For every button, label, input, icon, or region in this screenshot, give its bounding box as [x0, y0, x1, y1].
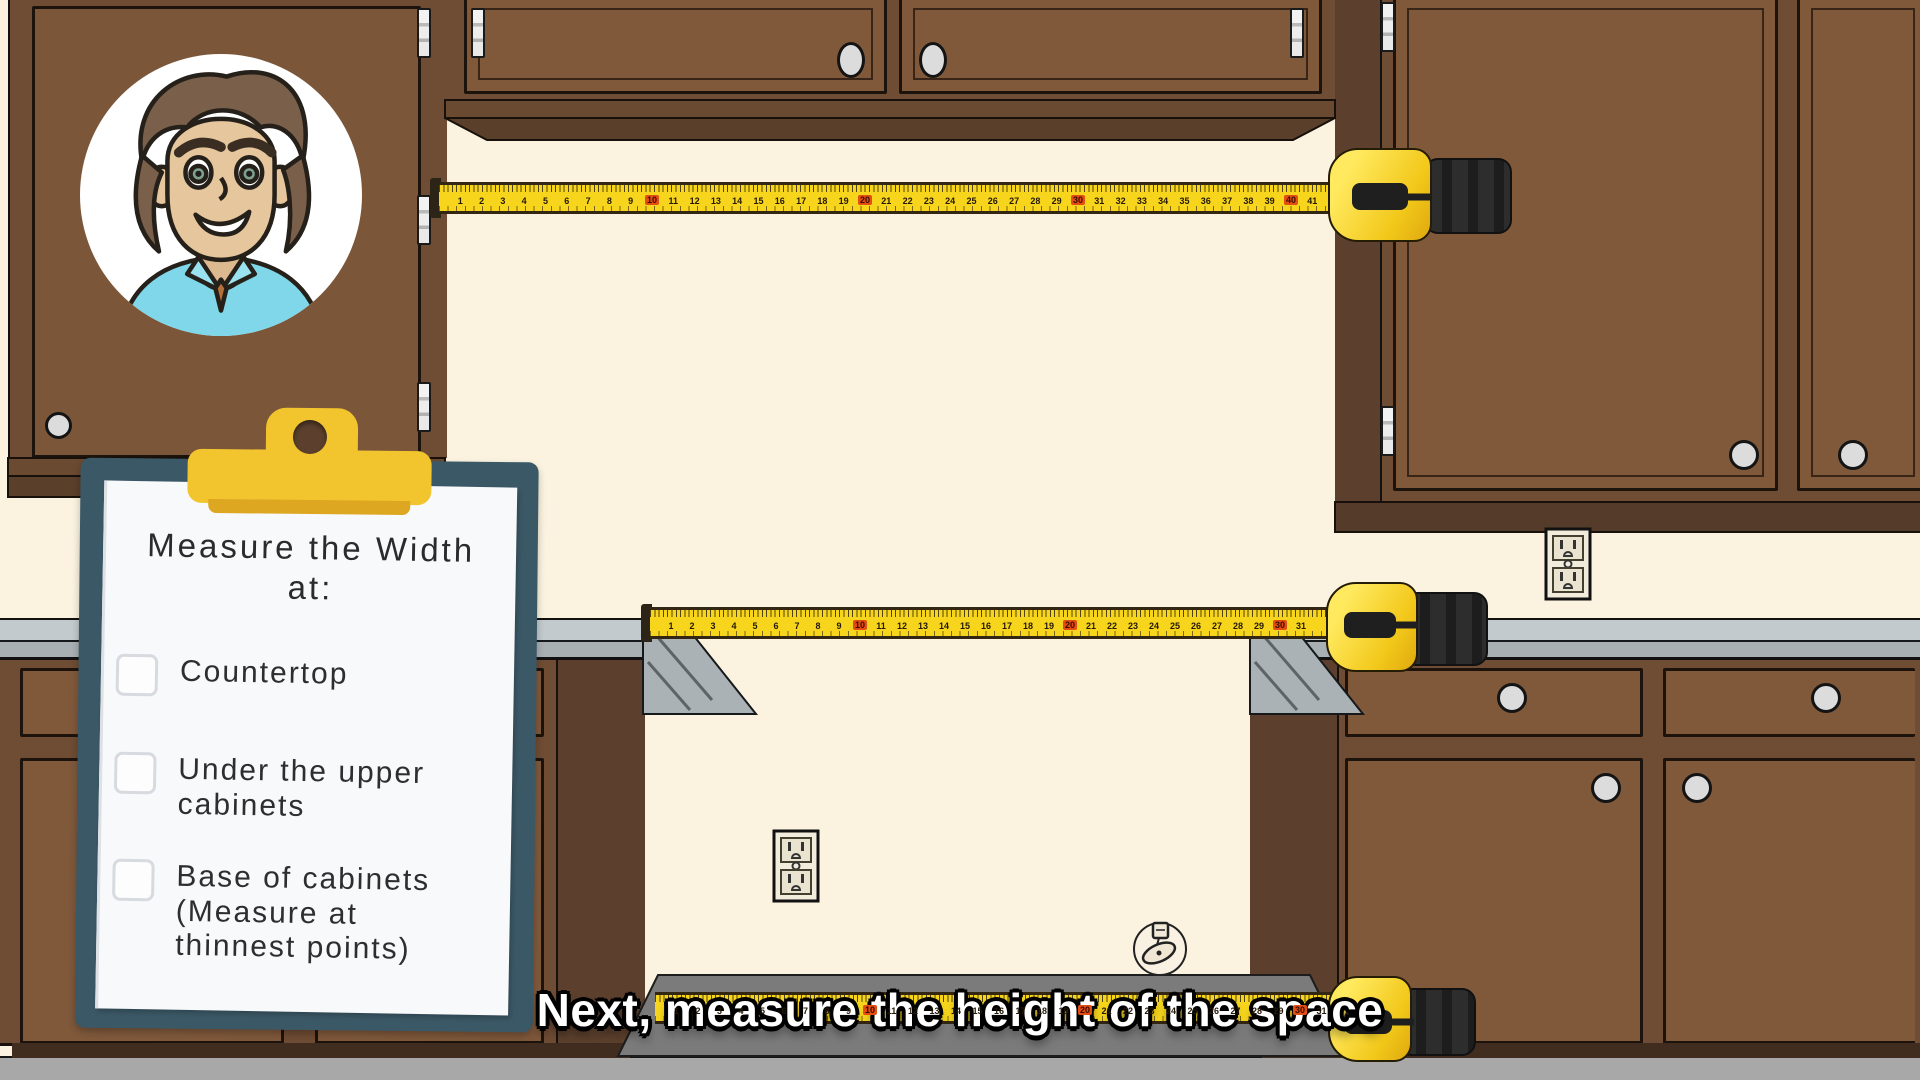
tape-number: 27 [1212, 621, 1222, 631]
presenter-avatar [80, 54, 362, 336]
tape-number: 30 [1293, 1005, 1307, 1015]
checklist-item: Base of cabinets (Measure at thinnest po… [111, 859, 482, 969]
upper-right-right-door [1797, 0, 1920, 491]
tape-number: 17 [1002, 621, 1012, 631]
tape-number: 13 [711, 196, 721, 206]
clipboard-clip-icon [208, 499, 410, 515]
floor [0, 1056, 1920, 1080]
tape-number: 29 [1254, 621, 1264, 631]
lower-right-drawer [1345, 668, 1643, 737]
tape-number: 15 [960, 621, 970, 631]
checklist-title-line2: at: [105, 564, 516, 611]
tape-number: 27 [1009, 196, 1019, 206]
tape-number: 16 [994, 1006, 1004, 1016]
tape-number: 6 [781, 1006, 786, 1016]
tape-number: 20 [1078, 1005, 1092, 1015]
tape-number: 31 [1094, 196, 1104, 206]
tape-number: 29 [1273, 1006, 1283, 1016]
tape-number: 28 [1233, 621, 1243, 631]
tape-number: 18 [817, 196, 827, 206]
tape-number: 3 [710, 621, 715, 631]
toe-kick [12, 1043, 630, 1058]
tape-number: 17 [1015, 1006, 1025, 1016]
cabinet-knob [837, 42, 865, 78]
tape-number: 39 [1265, 196, 1275, 206]
tape-number: 31 [1296, 621, 1306, 631]
clipboard: Measure the Width at: Countertop Under t… [75, 406, 539, 1033]
cabinet-hinge-icon [1290, 8, 1304, 58]
checklist-item: Countertop [116, 654, 349, 700]
tape-number: 15 [753, 196, 763, 206]
tape-number: 10 [853, 620, 867, 630]
tape-number: 1 [668, 621, 673, 631]
checkbox-icon[interactable] [114, 752, 157, 795]
tape-number: 13 [918, 621, 928, 631]
tape-number: 30 [1071, 195, 1085, 205]
cabinet-hinge-icon [1381, 406, 1395, 456]
tape-number: 26 [1191, 621, 1201, 631]
tape-number: 3 [500, 196, 505, 206]
tape-number: 5 [752, 621, 757, 631]
cabinet-knob [1729, 440, 1759, 470]
upper-middle-right-door [899, 0, 1322, 94]
tape-number: 23 [924, 196, 934, 206]
tape-number: 28 [1252, 1006, 1262, 1016]
tape-number: 8 [824, 1006, 829, 1016]
cabinet-hinge-icon [417, 195, 431, 245]
tape-blade: 1234567891011121314151617181920212223242… [650, 607, 1332, 639]
tape-number: 22 [1107, 621, 1117, 631]
tape-number: 4 [738, 1006, 743, 1016]
tape-number: 2 [479, 196, 484, 206]
clipboard-clip-icon [187, 449, 432, 506]
tape-number: 4 [731, 621, 736, 631]
tape-number: 12 [690, 196, 700, 206]
floor-gas-connector-icon [1134, 923, 1186, 975]
tape-number: 6 [773, 621, 778, 631]
tape-number: 32 [1116, 196, 1126, 206]
tape-number: 16 [981, 621, 991, 631]
cabinet-hinge-icon [471, 8, 485, 58]
checklist-item-label: Under the upper cabinets [177, 753, 483, 827]
checklist-item: Under the upper cabinets [113, 752, 483, 827]
tape-number: 18 [1023, 621, 1033, 631]
tape-number: 27 [1230, 1006, 1240, 1016]
clipboard-paper: Measure the Width at: Countertop Under t… [95, 480, 517, 1015]
cabinet-knob [1682, 773, 1712, 803]
tape-number: 20 [1063, 620, 1077, 630]
tape-number: 7 [803, 1006, 808, 1016]
tape-number: 24 [1166, 1006, 1176, 1016]
tape-number: 19 [839, 196, 849, 206]
tape-number: 18 [1037, 1006, 1047, 1016]
tape-number: 12 [908, 1006, 918, 1016]
tape-number: 5 [543, 196, 548, 206]
checklist-item-label: Base of cabinets (Measure at thinnest po… [175, 860, 482, 969]
tape-number: 37 [1222, 196, 1232, 206]
tape-number: 38 [1243, 196, 1253, 206]
cabinet-knob [919, 42, 947, 78]
tape-number: 14 [732, 196, 742, 206]
tape-number: 19 [1058, 1006, 1068, 1016]
tape-number: 16 [775, 196, 785, 206]
tape-number: 6 [564, 196, 569, 206]
tape-number: 25 [1187, 1006, 1197, 1016]
tape-number: 2 [689, 621, 694, 631]
checklist-title: Measure the Width at: [105, 524, 516, 610]
tape-blade: 1234567891011121314151617181920212223242… [439, 182, 1335, 214]
upper-right-left-door [1393, 0, 1778, 491]
tape-number: 34 [1158, 196, 1168, 206]
tape-number: 28 [1030, 196, 1040, 206]
upper-right-crown [1335, 502, 1920, 532]
tape-number: 7 [586, 196, 591, 206]
tape-number: 13 [929, 1006, 939, 1016]
upper-middle-left-door [464, 0, 887, 94]
cabinet-knob [1838, 440, 1868, 470]
tape-number: 9 [846, 1006, 851, 1016]
upper-middle-crown [445, 100, 1335, 140]
upper-right-cabinet-side [1335, 0, 1382, 502]
tape-number: 11 [876, 621, 886, 631]
tape-number: 11 [669, 196, 679, 206]
cabinet-knob [1811, 683, 1841, 713]
tape-number: 4 [522, 196, 527, 206]
lower-right-drawer [1663, 668, 1915, 737]
tape-number: 14 [951, 1006, 961, 1016]
tape-number: 23 [1128, 621, 1138, 631]
tape-number: 22 [903, 196, 913, 206]
tape-number: 9 [628, 196, 633, 206]
tape-number: 26 [1209, 1006, 1219, 1016]
kitchen-scene: 1234567891011121314151617181920212223242… [0, 0, 1920, 1080]
cabinet-knob [1497, 683, 1527, 713]
cabinet-knob [1591, 773, 1621, 803]
tape-number: 35 [1179, 196, 1189, 206]
cabinet-hinge-icon [1381, 2, 1395, 52]
tape-number: 21 [1086, 621, 1096, 631]
tape-number: 10 [863, 1005, 877, 1015]
tape-number: 10 [645, 195, 659, 205]
clipboard-clip-hole [293, 420, 327, 454]
tape-number: 12 [897, 621, 907, 631]
tape-number: 8 [815, 621, 820, 631]
tape-number: 24 [1149, 621, 1159, 631]
tape-number: 11 [887, 1006, 897, 1016]
tape-number: 7 [794, 621, 799, 631]
tape-number: 1 [674, 1006, 679, 1016]
power-outlet-icon [774, 831, 818, 901]
tape-number: 30 [1273, 620, 1287, 630]
tape-number: 29 [1052, 196, 1062, 206]
cabinet-knob [45, 412, 72, 439]
tape-lock-slider [1352, 183, 1408, 210]
tape-number: 33 [1137, 196, 1147, 206]
tape-number: 21 [881, 196, 891, 206]
tape-number: 19 [1044, 621, 1054, 631]
tape-number: 17 [796, 196, 806, 206]
power-outlet-icon [1546, 529, 1590, 599]
checkbox-icon[interactable] [116, 654, 159, 697]
tape-number: 5 [760, 1006, 765, 1016]
upper-right-cabinet [1335, 0, 1920, 502]
tape-number: 25 [1170, 621, 1180, 631]
tape-number: 24 [945, 196, 955, 206]
presenter-avatar-illustration [80, 54, 362, 336]
tape-body-back [1424, 158, 1512, 234]
tape-lock-slider [1344, 612, 1396, 638]
tape-number: 8 [607, 196, 612, 206]
checklist-item-label: Countertop [180, 655, 349, 692]
tape-number: 2 [695, 1006, 700, 1016]
tape-number: 21 [1101, 1006, 1111, 1016]
tape-number: 15 [972, 1006, 982, 1016]
tape-number: 1 [458, 196, 463, 206]
tape-number: 20 [858, 195, 872, 205]
tape-number: 31 [1316, 1006, 1326, 1016]
checkbox-icon[interactable] [112, 859, 155, 902]
upper-middle-cabinet [445, 0, 1335, 100]
tape-number: 23 [1144, 1006, 1154, 1016]
tape-number: 25 [966, 196, 976, 206]
tape-number: 26 [988, 196, 998, 206]
tape-number: 41 [1307, 196, 1317, 206]
tape-number: 9 [836, 621, 841, 631]
tape-number: 14 [939, 621, 949, 631]
tape-number: 40 [1284, 195, 1298, 205]
cabinet-hinge-icon [417, 8, 431, 58]
tape-number: 36 [1201, 196, 1211, 206]
tape-number: 22 [1123, 1006, 1133, 1016]
tape-number: 3 [717, 1006, 722, 1016]
checklist-title-line1: Measure the Width [106, 524, 517, 571]
